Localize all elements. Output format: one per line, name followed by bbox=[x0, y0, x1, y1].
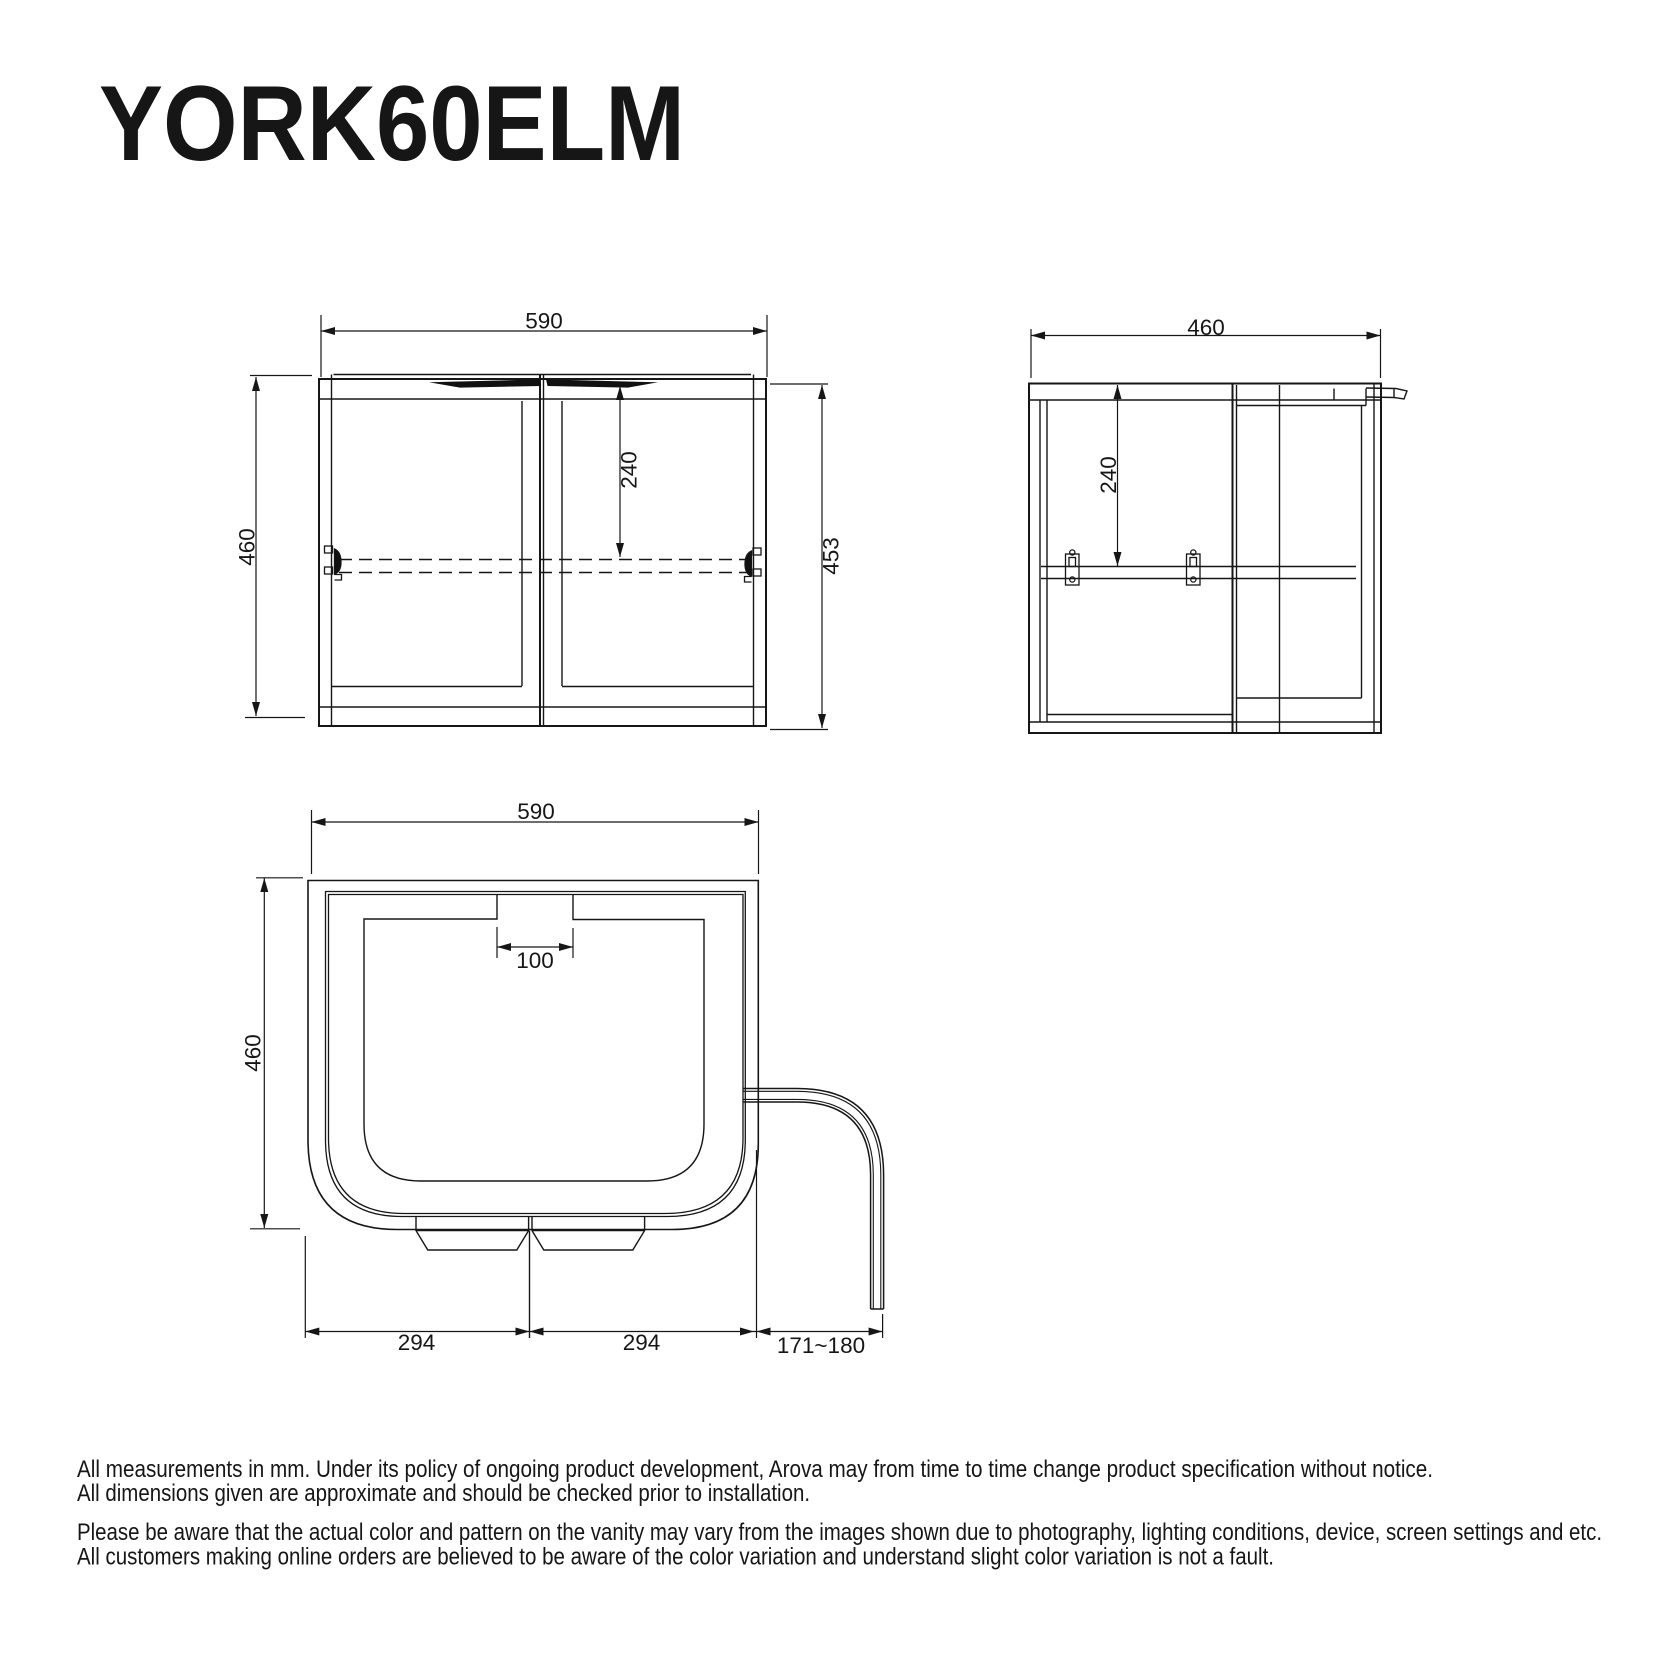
svg-text:590: 590 bbox=[517, 799, 555, 824]
svg-text:All customers making online or: All customers making online orders are b… bbox=[77, 1544, 1274, 1571]
svg-text:Please be aware that the actua: Please be aware that the actual color an… bbox=[77, 1519, 1602, 1546]
svg-text:590: 590 bbox=[525, 309, 563, 334]
svg-text:294: 294 bbox=[623, 1330, 661, 1355]
svg-text:YORK60ELM: YORK60ELM bbox=[99, 63, 685, 183]
svg-text:All measurements in mm. Under: All measurements in mm. Under its policy… bbox=[77, 1456, 1433, 1483]
svg-text:100: 100 bbox=[516, 948, 554, 973]
svg-text:460: 460 bbox=[235, 528, 260, 566]
svg-text:240: 240 bbox=[617, 451, 642, 489]
svg-text:460: 460 bbox=[1187, 315, 1225, 340]
svg-text:453: 453 bbox=[819, 537, 844, 575]
svg-text:171~180: 171~180 bbox=[777, 1333, 865, 1358]
svg-text:240: 240 bbox=[1096, 456, 1121, 494]
svg-text:294: 294 bbox=[398, 1330, 436, 1355]
svg-text:460: 460 bbox=[241, 1034, 266, 1072]
svg-text:All dimensions given are appro: All dimensions given are approximate and… bbox=[77, 1480, 810, 1507]
